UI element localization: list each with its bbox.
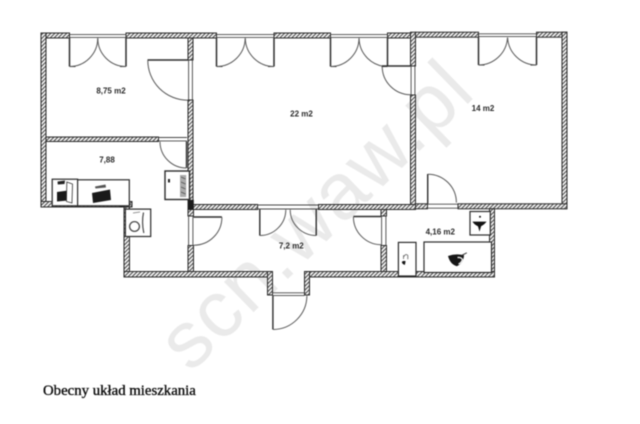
svg-text:Obecny układ mieszkania: Obecny układ mieszkania — [43, 383, 196, 399]
svg-text:14 m2: 14 m2 — [472, 104, 495, 113]
svg-text:22 m2: 22 m2 — [290, 109, 313, 118]
svg-text:8,75 m2: 8,75 m2 — [96, 87, 126, 96]
svg-text:7,2 m2: 7,2 m2 — [279, 241, 304, 250]
svg-text:4,16 m2: 4,16 m2 — [426, 227, 456, 236]
svg-text:7,88: 7,88 — [99, 155, 115, 164]
